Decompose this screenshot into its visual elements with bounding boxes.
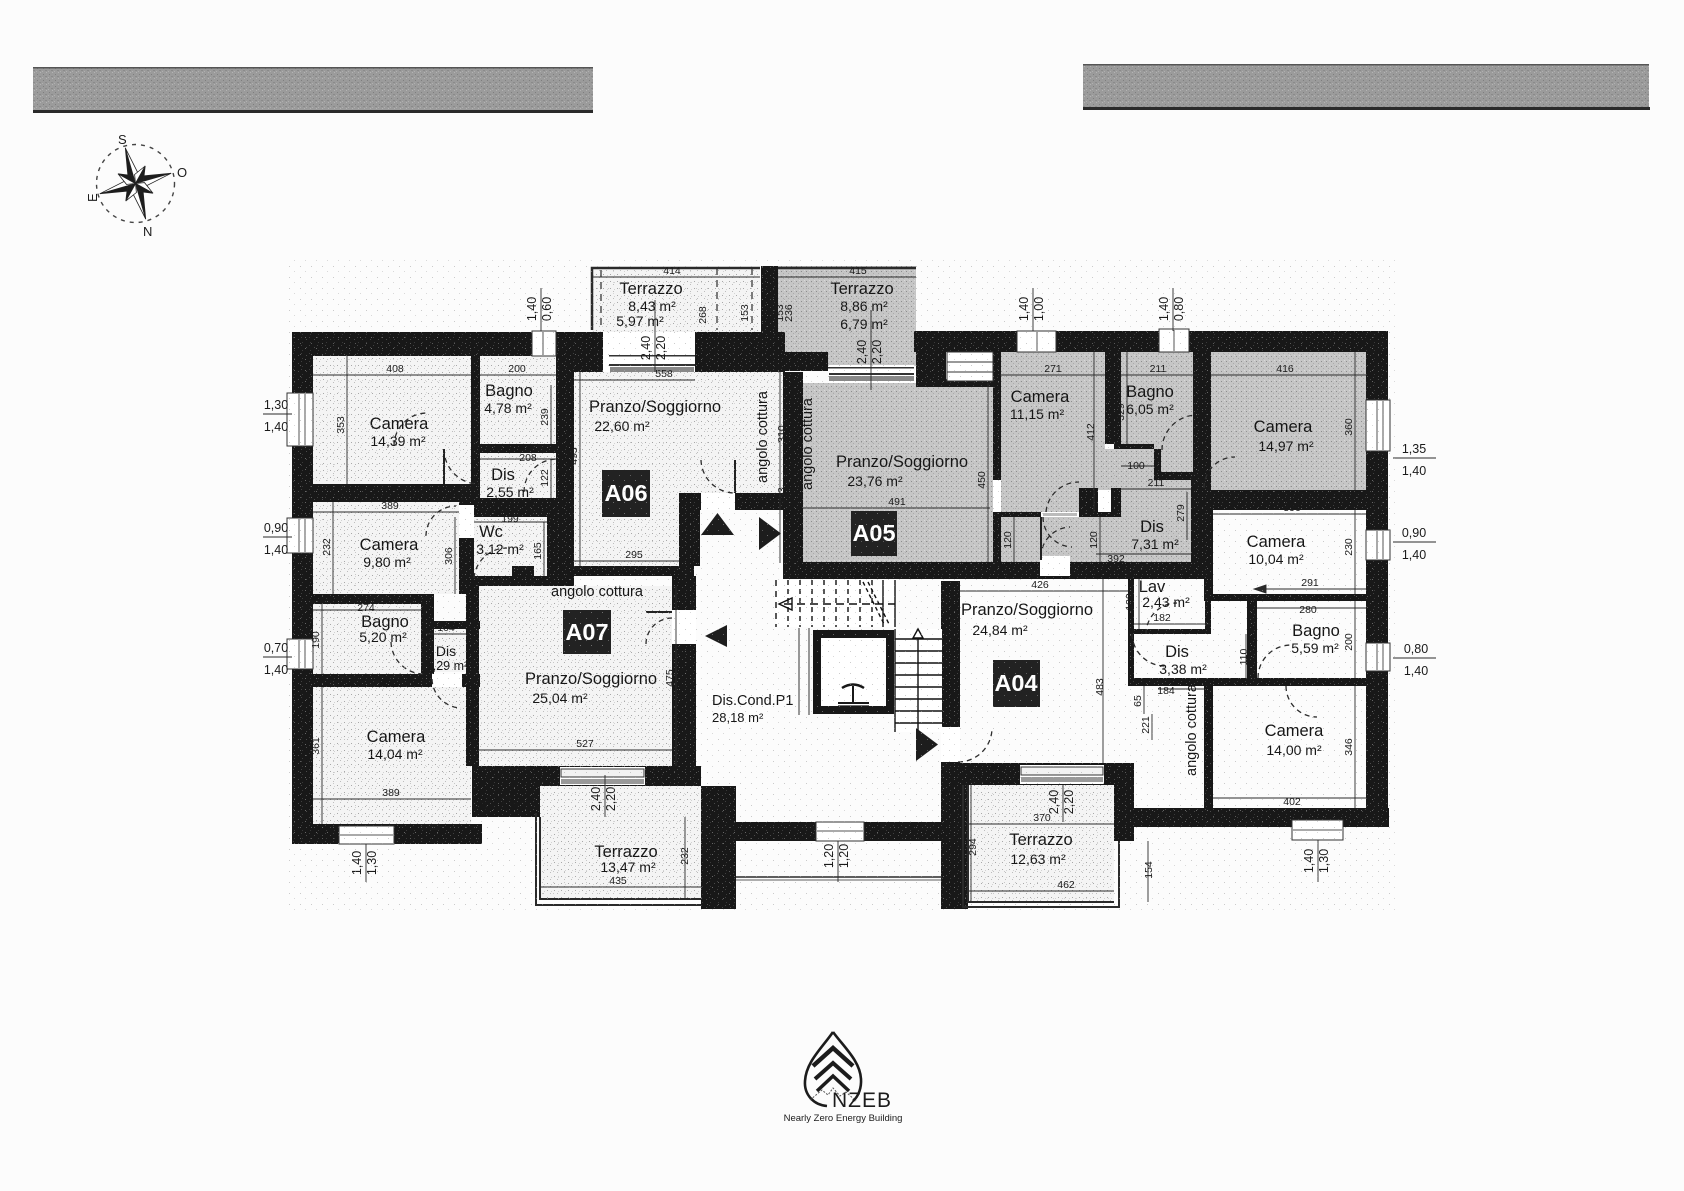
svg-text:0,90: 0,90 [264, 521, 288, 535]
svg-text:O: O [177, 165, 187, 180]
svg-text:0,80: 0,80 [1404, 642, 1428, 656]
svg-text:1,40: 1,40 [264, 663, 288, 677]
svg-text:0,70: 0,70 [264, 641, 288, 655]
svg-text:1,40: 1,40 [1402, 548, 1426, 562]
svg-text:1,40: 1,40 [1404, 664, 1428, 678]
svg-text:1,40: 1,40 [264, 543, 288, 557]
svg-text:S: S [118, 132, 127, 147]
svg-text:1,40: 1,40 [264, 420, 288, 434]
svg-text:Nearly Zero Energy Building: Nearly Zero Energy Building [784, 1113, 903, 1124]
svg-text:E: E [85, 193, 100, 202]
svg-text:0,90: 0,90 [1402, 526, 1426, 540]
svg-text:1,30: 1,30 [264, 398, 288, 412]
svg-text:1,40: 1,40 [1402, 464, 1426, 478]
svg-text:NZEB: NZEB [832, 1089, 892, 1112]
svg-text:N: N [143, 224, 152, 239]
svg-text:1,35: 1,35 [1402, 442, 1426, 456]
